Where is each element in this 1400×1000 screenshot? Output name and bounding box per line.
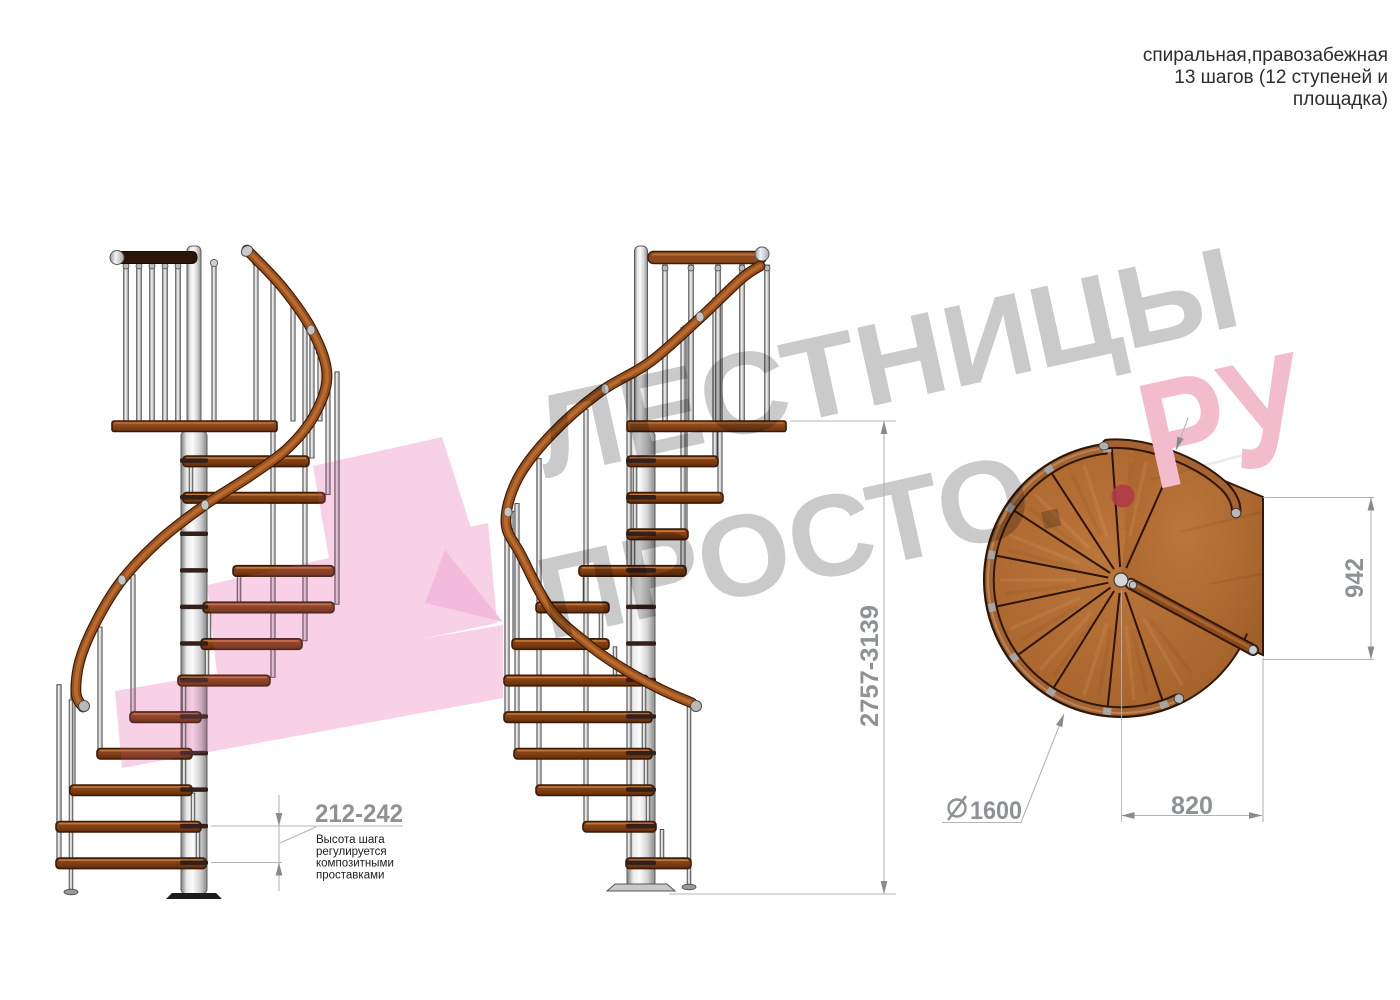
- svg-text:212-242: 212-242: [315, 800, 403, 828]
- svg-text:1600: 1600: [970, 797, 1022, 825]
- svg-text:820: 820: [1171, 792, 1213, 820]
- svg-text:композитными: композитными: [316, 858, 394, 870]
- svg-text:2757-3139: 2757-3139: [856, 605, 884, 727]
- svg-text:регулируется: регулируется: [316, 846, 387, 858]
- svg-text:13 шагов (12 ступеней и: 13 шагов (12 ступеней и: [1174, 67, 1388, 88]
- svg-text:площадка): площадка): [1293, 89, 1388, 110]
- svg-text:спиральная,правозабежная: спиральная,правозабежная: [1143, 45, 1388, 66]
- svg-text:942: 942: [1341, 558, 1369, 598]
- svg-text:Высота шага: Высота шага: [316, 834, 385, 846]
- svg-text:проставками: проставками: [316, 869, 384, 881]
